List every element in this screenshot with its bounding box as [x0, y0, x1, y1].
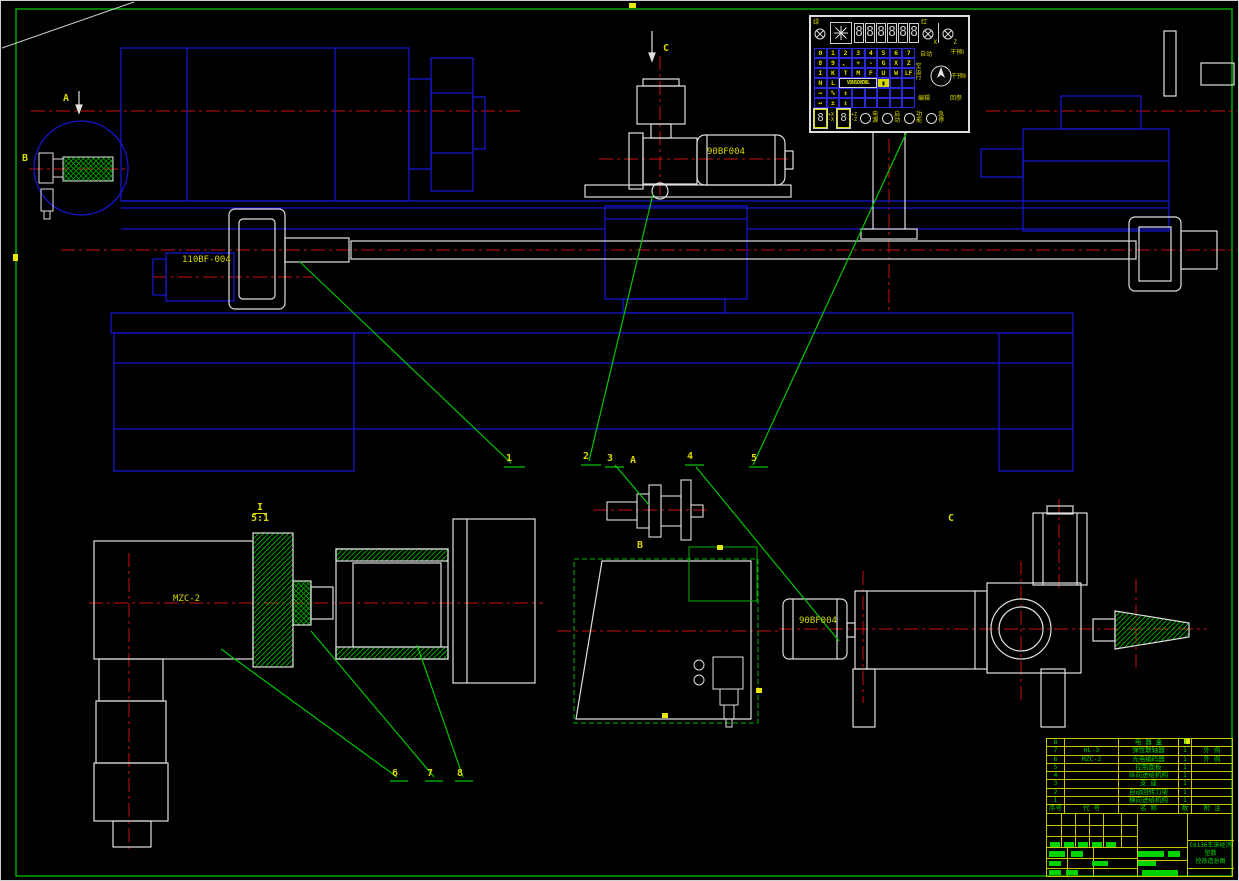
bom-name: 支 座: [1119, 780, 1179, 787]
panel-key[interactable]: I: [814, 68, 827, 78]
mode-homeref: 回参: [950, 96, 962, 102]
view-label-a-mid: A: [630, 455, 636, 466]
part-label-encoder: MZC-2: [173, 594, 200, 604]
headstock: [121, 48, 409, 201]
panel-key[interactable]: T: [839, 68, 852, 78]
lamp-icon: [942, 28, 954, 40]
mode-jog2: 干预Ⅱ: [951, 74, 966, 80]
bom-code: [1065, 780, 1119, 787]
bom-code: MZC-2: [1065, 756, 1119, 763]
panel-buttons: 电源 启动 功能 急停: [860, 112, 945, 124]
bom-note: [1192, 739, 1232, 746]
bom-seq: 2: [1047, 789, 1065, 796]
panel-key[interactable]: K: [827, 68, 840, 78]
axis-display: 8 +X-X: [814, 109, 834, 128]
panel-key[interactable]: ↕: [839, 88, 852, 98]
green-lamp: 绿: [813, 22, 828, 44]
tailstock-handle: [1164, 31, 1234, 96]
panel-indicator-strip: 绿 888888 红 X Z: [813, 20, 966, 46]
panel-key[interactable]: U: [877, 68, 890, 78]
mode-jog1: 干预Ⅰ: [950, 50, 964, 56]
panel-pushbutton[interactable]: 电源: [860, 112, 879, 124]
panel-pushbutton[interactable]: 功能: [904, 112, 923, 124]
seven-seg-digit: 8: [898, 23, 908, 43]
panel-key[interactable]: [865, 88, 878, 98]
view-label-c-mid: C: [948, 513, 954, 524]
bom-note: [1192, 764, 1232, 771]
bom-note: 外 购: [1192, 756, 1232, 763]
cad-drawing-page: A B C A B C 90BF004 110BF-004 MZC-2 90BF…: [0, 0, 1239, 881]
red-lamp-label: 红: [921, 20, 927, 26]
bom-code: [1065, 797, 1119, 804]
bom-code: [1065, 764, 1119, 771]
axis-minus-label: -Z: [851, 118, 857, 123]
panel-pushbutton[interactable]: 急停: [926, 112, 945, 124]
bom-row: 2 自动回转刀架 1: [1047, 789, 1232, 797]
view-label-c-top: C: [663, 43, 669, 54]
part-label-motor-c: 90BF004: [799, 616, 837, 626]
bom-code: HL-3: [1065, 747, 1119, 754]
bom-name: 光电编码器: [1119, 756, 1179, 763]
bom-seq: 4: [1047, 772, 1065, 779]
pushbutton-label: 功能: [916, 112, 923, 124]
bom-header-name: 名 称: [1119, 805, 1179, 812]
balloon-5: 5: [751, 453, 757, 464]
feed-motor-top: [585, 79, 793, 199]
panel-key[interactable]: 4: [865, 48, 878, 58]
panel-key[interactable]: M: [852, 68, 865, 78]
bom-note: [1192, 780, 1232, 787]
balloon-7: 7: [427, 768, 433, 779]
mode-edit: 编辑: [918, 96, 930, 102]
bom-qty: 1: [1179, 789, 1192, 796]
bom-header-seq: 序号: [1047, 805, 1065, 812]
pushbutton-label: 急停: [938, 112, 945, 124]
panel-key[interactable]: 6: [890, 48, 903, 58]
bom-seq: 3: [1047, 780, 1065, 787]
bom-seq: 7: [1047, 747, 1065, 754]
part-label-feed-unit: 110BF-004: [182, 255, 231, 265]
bom-qty: 1: [1179, 739, 1192, 746]
bom-name: 弹性联轴器: [1119, 747, 1179, 754]
title-block: 8 电 器 盒 1 7 HL-3 弹性联轴器 1 外 购 6 MZC-2: [1046, 738, 1233, 877]
bom-seq: 5: [1047, 764, 1065, 771]
view-label-b-left: B: [22, 153, 28, 164]
seven-seg-digit: 8: [876, 23, 886, 43]
panel-key[interactable]: X: [890, 58, 903, 68]
selection-grips[interactable]: [13, 3, 1190, 744]
lamp-icon: [814, 28, 826, 40]
seven-seg-digit: 8: [909, 23, 919, 43]
bom-qty: 1: [1179, 780, 1192, 787]
bom-note: [1192, 772, 1232, 779]
tailstock: [981, 96, 1169, 231]
panel-key[interactable]: +: [852, 58, 865, 68]
bom-table: 8 电 器 盒 1 7 HL-3 弹性联轴器 1 外 购 6 MZC-2: [1047, 739, 1232, 814]
bom-header-qty: 数量: [1179, 805, 1192, 812]
panel-key[interactable]: 2: [839, 48, 852, 58]
centerlines: [29, 56, 1237, 849]
panel-key[interactable]: 0: [814, 48, 827, 58]
divider: [938, 23, 939, 43]
part-label-motor-top: 90BF004: [707, 147, 745, 157]
pushbutton-label: 电源: [872, 112, 879, 124]
axis-z-label: Z: [953, 40, 957, 46]
view-label-a-top: A: [63, 93, 69, 104]
pushbutton-icon[interactable]: [860, 113, 871, 124]
bed-rails: [121, 201, 1169, 229]
balloon-2: 2: [583, 451, 589, 462]
view-label-b-mid: B: [637, 540, 643, 551]
bom-seq: 6: [1047, 756, 1065, 763]
seven-segment-display: 888888: [854, 23, 919, 43]
green-lamp-label: 绿: [813, 20, 819, 26]
bom-qty: 1: [1179, 764, 1192, 771]
panel-key[interactable]: ▮: [877, 78, 890, 88]
axis-minus-label: -X: [828, 118, 834, 123]
balloon-6: 6: [392, 768, 398, 779]
view-direction-arrows: [76, 31, 655, 113]
panel-key[interactable]: -: [865, 58, 878, 68]
panel-key[interactable]: [852, 88, 865, 98]
seven-seg-digit: 8: [865, 23, 875, 43]
balloon-4: 4: [687, 451, 693, 462]
pushbutton-label: 启动: [894, 112, 901, 124]
panel-key[interactable]: 9: [827, 58, 840, 68]
white-linework: [76, 31, 1234, 309]
drawing-title-line1: C6136车床经济型数: [1188, 842, 1233, 858]
detail-view-I: [94, 519, 535, 847]
balloon-1: 1: [506, 453, 512, 464]
leader-lines: [221, 101, 921, 781]
bom-name: 电 器 盒: [1119, 739, 1179, 746]
lamp-icon: [922, 28, 934, 40]
view-c: [783, 506, 1189, 727]
cnc-control-panel: 绿 888888 红 X Z 0123456789、+-GXZIKTMFUWLF…: [809, 15, 970, 133]
leadscrew-assembly: [229, 209, 1217, 309]
balloon-3: 3: [607, 453, 613, 464]
star-icon: [833, 25, 849, 41]
bom-qty: 1: [1179, 756, 1192, 763]
panel-key[interactable]: [877, 88, 890, 98]
axis-displays: 8 +X-X 8 +Z-Z: [814, 109, 857, 128]
axis-digit: 8: [814, 109, 827, 128]
bom-qty: 1: [1179, 772, 1192, 779]
panel-key[interactable]: F: [865, 68, 878, 78]
bom-header-code: 代 号: [1065, 805, 1119, 812]
bom-note: [1192, 789, 1232, 796]
bom-row: 8 电 器 盒 1: [1047, 739, 1232, 747]
panel-pushbutton[interactable]: 启动: [882, 112, 901, 124]
axis-x-label: X: [933, 40, 937, 46]
detail-scale-marker: I 5:1: [251, 503, 269, 524]
bom-name: 控制面板: [1119, 764, 1179, 771]
panel-key[interactable]: 1: [827, 48, 840, 58]
bom-code: [1065, 789, 1119, 796]
pushbutton-icon[interactable]: [926, 113, 937, 124]
bom-header-row: 序号 代 号 名 称 数量 附 注: [1047, 805, 1232, 813]
bom-header-note: 附 注: [1192, 805, 1232, 812]
panel-key[interactable]: 8: [814, 58, 827, 68]
panel-key[interactable]: →: [814, 88, 827, 98]
bom-row: 3 支 座 1: [1047, 780, 1232, 788]
panel-key[interactable]: N: [814, 78, 827, 88]
panel-key[interactable]: W: [890, 68, 903, 78]
panel-key[interactable]: G: [877, 58, 890, 68]
axis-display: 8 +Z-Z: [837, 109, 857, 128]
mode-dryrun: 空运行: [914, 62, 920, 80]
mode-auto: 自动: [920, 52, 932, 58]
bom-note: [1192, 797, 1232, 804]
view-b: [574, 547, 758, 727]
panel-keyboard: 0123456789、+-GXZIKTMFUWLFNLVONSOHDBL▮→%↕…: [814, 48, 915, 108]
display-window: [830, 22, 852, 44]
chuck: [409, 58, 485, 191]
bom-seq: 8: [1047, 739, 1065, 746]
bom-row: 6 MZC-2 光电编码器 1 外 购: [1047, 756, 1232, 764]
panel-key[interactable]: VONSOHDBL: [839, 78, 877, 88]
panel-key[interactable]: 、: [839, 58, 852, 68]
drawing-title: C6136车床经济型数 控改造总图: [1188, 841, 1233, 867]
bom-code: [1065, 739, 1119, 746]
title-block-lower: C6136车床经济型数 控改造总图: [1047, 814, 1232, 876]
bom-row: 1 横向进给机构 1: [1047, 797, 1232, 805]
panel-key[interactable]: 5: [877, 48, 890, 58]
drawing-title-line2: 控改造总图: [1188, 858, 1233, 866]
bom-name: 横向进给机构: [1119, 797, 1179, 804]
bom-qty: 1: [1179, 747, 1192, 754]
mode-selector: 自动 干预Ⅰ 空运行 干预Ⅱ 编辑 回参: [914, 48, 966, 108]
pushbutton-icon[interactable]: [882, 113, 893, 124]
balloon-8: 8: [457, 768, 463, 779]
selector-knob[interactable]: [929, 64, 953, 88]
panel-key[interactable]: %: [827, 88, 840, 98]
red-lamp-x: 红 X: [921, 22, 936, 44]
bom-seq: 1: [1047, 797, 1065, 804]
pushbutton-icon[interactable]: [904, 113, 915, 124]
bom-row: 5 控制面板 1: [1047, 764, 1232, 772]
red-lamp-z: Z: [941, 22, 956, 44]
bom-row: 7 HL-3 弹性联轴器 1 外 购: [1047, 747, 1232, 755]
panel-key[interactable]: 3: [852, 48, 865, 58]
seven-seg-digit: 8: [854, 23, 864, 43]
bom-name: 纵向进给机构: [1119, 772, 1179, 779]
bom-code: [1065, 772, 1119, 779]
panel-bottom-row: 8 +X-X 8 +Z-Z 电源 启动: [814, 107, 966, 129]
encoder-detail-circle: [34, 121, 128, 219]
panel-key[interactable]: L: [827, 78, 840, 88]
bom-row: 4 纵向进给机构 1: [1047, 772, 1232, 780]
panel-key[interactable]: [890, 88, 903, 98]
bom-note: 外 购: [1192, 747, 1232, 754]
seven-seg-digit: 8: [887, 23, 897, 43]
panel-key[interactable]: [890, 78, 903, 88]
bom-name: 自动回转刀架: [1119, 789, 1179, 796]
detail-scale: 5:1: [251, 513, 269, 524]
axis-digit: 8: [837, 109, 850, 128]
bom-qty: 1: [1179, 797, 1192, 804]
